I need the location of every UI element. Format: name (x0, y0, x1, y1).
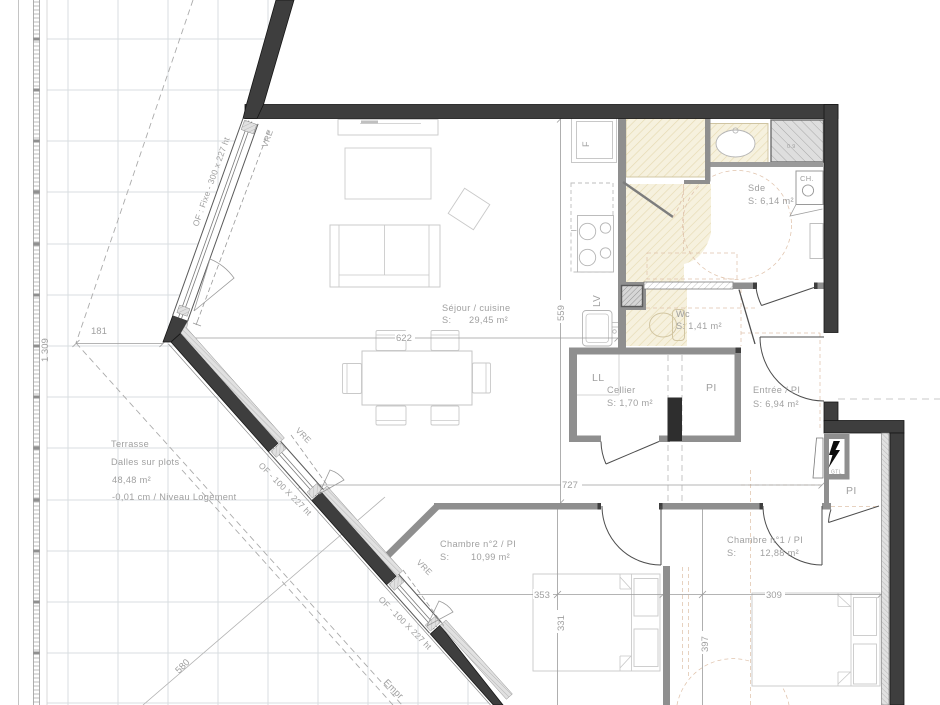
svg-text:Entrée / PI: Entrée / PI (753, 385, 800, 395)
svg-text:Empr: Empr (381, 677, 405, 701)
svg-text:VRE: VRE (259, 128, 275, 149)
svg-text:580: 580 (173, 657, 192, 676)
svg-text:Dalles sur plots: Dalles sur plots (111, 457, 179, 467)
svg-text:727: 727 (562, 480, 578, 491)
svg-text:Séjour / cuisine: Séjour / cuisine (442, 303, 510, 313)
svg-text:F: F (581, 141, 591, 147)
svg-text:S:: S: (727, 548, 736, 558)
svg-text:622: 622 (396, 333, 412, 344)
svg-text:S: 1,41 m²: S: 1,41 m² (676, 321, 722, 331)
svg-text:0.9: 0.9 (787, 144, 796, 150)
svg-text:Chambre n°1 / PI: Chambre n°1 / PI (727, 535, 803, 545)
svg-text:12,88 m²: 12,88 m² (760, 548, 799, 558)
svg-text:397: 397 (700, 636, 711, 652)
svg-text:331: 331 (556, 615, 567, 631)
svg-text:S: 6,14 m²: S: 6,14 m² (748, 196, 794, 206)
svg-text:353: 353 (534, 590, 550, 601)
svg-text:1 309: 1 309 (40, 338, 51, 362)
svg-text:Terrasse: Terrasse (111, 439, 149, 449)
svg-text:CH.: CH. (800, 174, 814, 183)
svg-text:PI: PI (846, 485, 857, 497)
svg-text:LV: LV (592, 295, 603, 307)
svg-text:-0,01 cm / Niveau Logement: -0,01 cm / Niveau Logement (112, 492, 237, 502)
svg-text:LL: LL (592, 372, 604, 384)
svg-text:309: 309 (766, 590, 782, 601)
svg-text:559: 559 (556, 305, 567, 321)
svg-text:S:: S: (440, 552, 449, 562)
svg-text:29,45 m²: 29,45 m² (469, 315, 508, 325)
svg-text:VRE: VRE (415, 557, 435, 577)
svg-text:S: 6,94 m²: S: 6,94 m² (753, 399, 799, 409)
svg-text:PI: PI (706, 382, 717, 394)
svg-text:S: 1,70 m²: S: 1,70 m² (607, 398, 653, 408)
svg-text:Sde: Sde (748, 183, 765, 193)
svg-text:48,48 m²: 48,48 m² (112, 475, 151, 485)
svg-text:181: 181 (91, 326, 107, 337)
svg-text:Wc: Wc (676, 309, 690, 319)
svg-text:Cellier: Cellier (607, 385, 636, 395)
svg-text:S:: S: (442, 315, 451, 325)
svg-text:GTL: GTL (831, 470, 842, 476)
svg-text:10,99 m²: 10,99 m² (471, 552, 510, 562)
svg-text:Chambre n°2 / PI: Chambre n°2 / PI (440, 539, 516, 549)
